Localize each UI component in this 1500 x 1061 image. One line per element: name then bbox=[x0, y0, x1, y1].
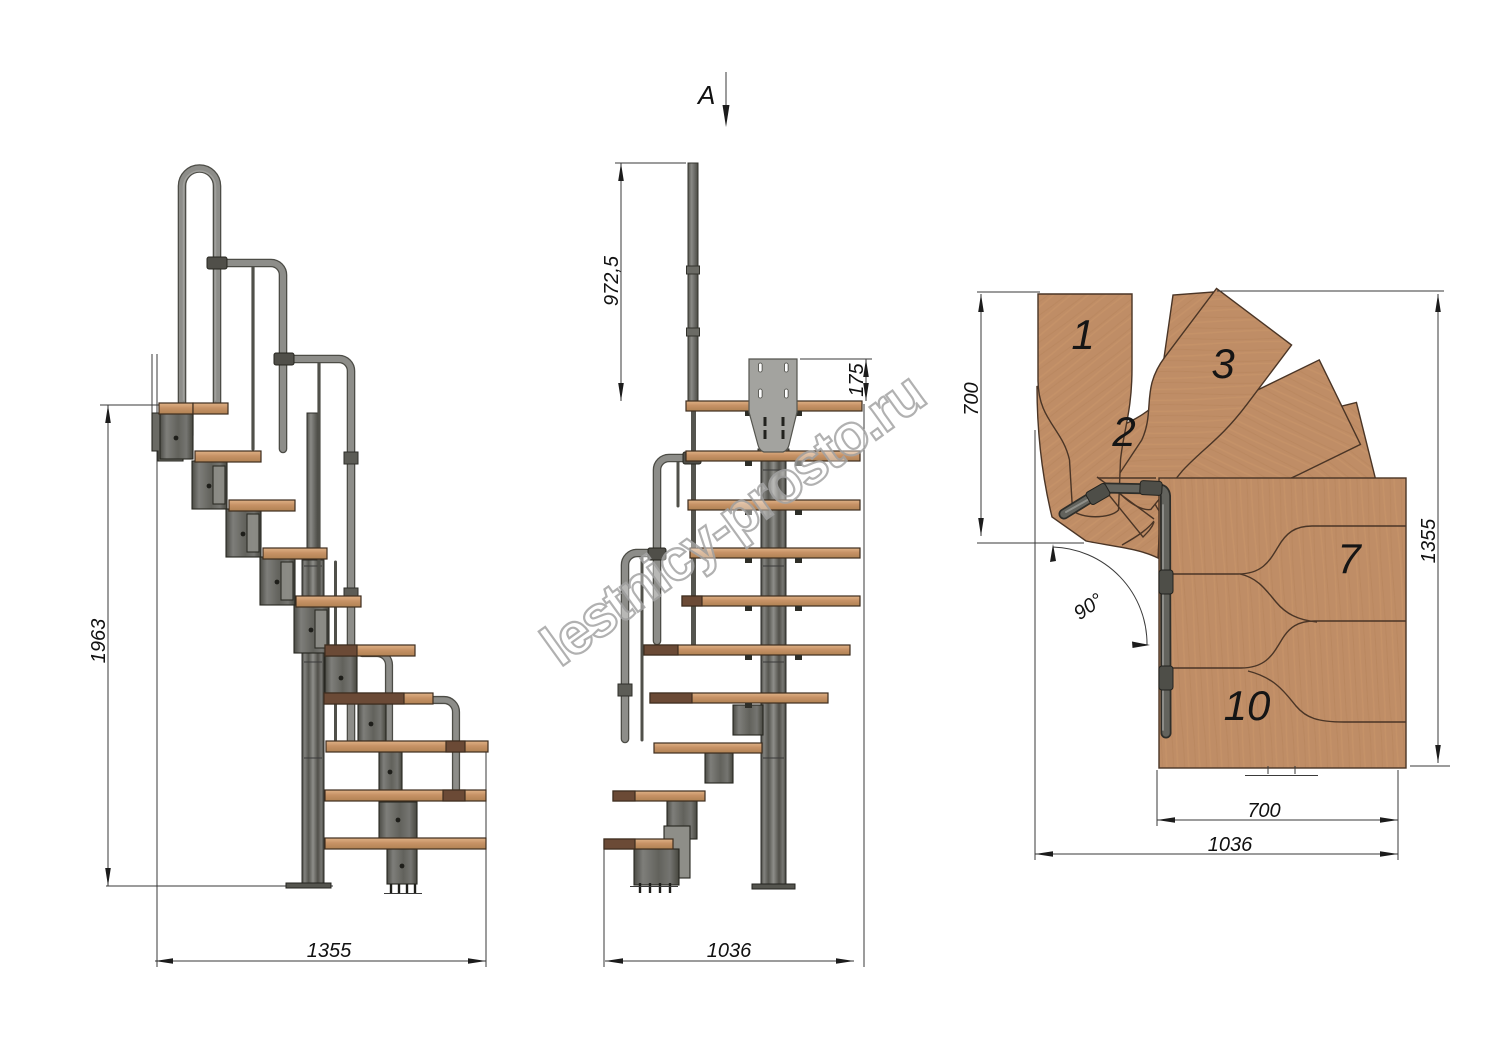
svg-text:1355: 1355 bbox=[307, 940, 352, 962]
svg-text:1963: 1963 bbox=[88, 619, 110, 664]
svg-text:10: 10 bbox=[1224, 682, 1271, 729]
svg-text:1036: 1036 bbox=[1208, 834, 1253, 856]
svg-text:2: 2 bbox=[1111, 408, 1135, 455]
svg-text:3: 3 bbox=[1211, 340, 1234, 387]
svg-text:1: 1 bbox=[1071, 311, 1094, 358]
svg-text:700: 700 bbox=[1247, 800, 1280, 822]
svg-text:A: A bbox=[696, 80, 715, 110]
svg-text:700: 700 bbox=[961, 382, 983, 415]
svg-text:972,5: 972,5 bbox=[601, 255, 623, 306]
svg-text:1036: 1036 bbox=[707, 940, 752, 962]
svg-text:1355: 1355 bbox=[1418, 518, 1440, 563]
svg-text:7: 7 bbox=[1337, 535, 1362, 582]
